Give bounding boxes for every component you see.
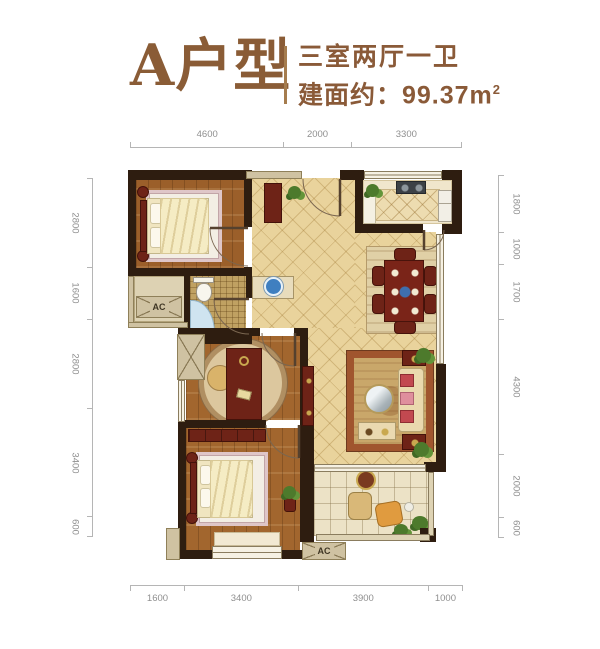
dimension-label: 1600 (147, 593, 168, 604)
sofa-cushion-icon (400, 392, 414, 405)
dimension-ruler-right: 18001000170043002000600 (498, 175, 504, 538)
dimension-segment: 2000 (283, 142, 350, 148)
ac-platform-left: AC (136, 296, 182, 318)
wall-bedroom2-north (178, 420, 266, 428)
wall-bath-east-upper (246, 276, 252, 298)
dimension-label: 600 (70, 519, 81, 535)
foyer-plant-icon (288, 186, 301, 199)
dimension-segment: 2800 (87, 178, 93, 267)
flue-shaft (177, 334, 205, 380)
dimension-segment: 1700 (498, 264, 504, 318)
bed-headboard-icon (140, 200, 147, 252)
dining-bay-window (436, 234, 444, 364)
dimension-label: 3300 (396, 129, 417, 140)
sofa-cushion-icon (400, 374, 414, 387)
dimension-label: 3400 (231, 593, 252, 604)
dimension-segment: 600 (498, 517, 504, 538)
wardrobe-icon (188, 429, 266, 442)
dimension-label: 3900 (353, 593, 374, 604)
dimension-segment: 3400 (184, 585, 298, 591)
dimension-label: 4600 (197, 129, 218, 140)
dimension-segment: 1000 (498, 232, 504, 264)
dimension-ruler-top: 460020003300 (130, 142, 462, 148)
dimension-segment: 3900 (298, 585, 428, 591)
dimension-segment: 1800 (498, 175, 504, 232)
ac-niche-west-wall (128, 276, 134, 328)
dimension-ruler-left: 2800160028003400600 (87, 178, 93, 537)
balcony-chair-icon (348, 492, 372, 520)
dining-chair-icon (394, 321, 416, 334)
floorplan-page: A户型 三室两厅一卫 建面约：99.37m2 460020003300 1600… (0, 0, 600, 649)
dimension-segment: 4600 (130, 142, 283, 148)
dimension-label: 2800 (70, 213, 81, 234)
dimension-label: 4300 (511, 376, 522, 397)
wall-bedroom2-south-a (178, 550, 216, 559)
balcony-table-icon (356, 470, 376, 490)
dimension-label: 2000 (511, 475, 522, 496)
tv-bench-icon (358, 422, 396, 440)
wall-kitchen-south-corner (442, 224, 462, 234)
wall-top-master (128, 170, 246, 180)
desk-plate-icon (239, 356, 249, 366)
dimension-label: 2800 (70, 353, 81, 374)
living-plant-icon (414, 442, 429, 457)
toilet-icon (196, 283, 212, 302)
rooms-text: 三室两厅一卫 (298, 42, 501, 73)
nightstand-icon (137, 186, 149, 198)
dimension-segment: 1600 (87, 267, 93, 318)
living-plant-icon (416, 348, 431, 363)
page-title: A户型 (130, 30, 291, 102)
blanket-icon (160, 198, 209, 254)
dimension-label: 1600 (70, 283, 81, 304)
shoe-cabinet-icon (264, 183, 282, 223)
dimension-label: 1000 (435, 593, 456, 604)
wall-bedroom2-east (300, 420, 314, 542)
fridge-icon (438, 190, 452, 222)
dimension-label: 3400 (70, 452, 81, 473)
dining-table-icon (384, 260, 424, 322)
coffee-table-icon (364, 384, 394, 414)
dimension-segment: 1000 (428, 585, 463, 591)
sofa-cushion-icon (400, 410, 414, 423)
dimension-label: 600 (511, 520, 522, 536)
dimension-segment: 2000 (498, 454, 504, 517)
dimension-segment: 4300 (498, 319, 504, 454)
wall-master-south (128, 268, 252, 276)
blanket-icon (210, 460, 253, 518)
study-window (178, 380, 185, 422)
ac-niche-south-wall (128, 322, 188, 328)
stove-icon (396, 181, 426, 194)
area-text: 建面约：99.37m2 (298, 73, 501, 112)
balcony-slider-window (314, 464, 426, 472)
unit-summary: 三室两厅一卫 建面约：99.37m2 (298, 42, 501, 112)
bedroom2-plant-icon (283, 486, 296, 499)
bay-window-seat (214, 532, 280, 546)
wall-living-east (436, 364, 446, 472)
dimension-segment: 600 (87, 516, 93, 537)
wall-balcony-north-jamb (424, 462, 438, 472)
balcony-rail-east (428, 472, 434, 536)
dimension-ruler-bottom: 1600340039001000 (130, 585, 463, 591)
ac-platform-bottom: AC (302, 542, 346, 560)
dimension-segment: 1600 (130, 585, 184, 591)
dimension-label: 1000 (511, 238, 522, 259)
header-divider (284, 46, 287, 104)
kitchen-counter-icon (363, 196, 376, 224)
washbasin-icon (264, 277, 283, 296)
wall-kitchen-south (355, 224, 423, 233)
wall-master-west (128, 170, 136, 276)
dimension-segment: 3300 (351, 142, 462, 148)
dimension-label: 2000 (307, 129, 328, 140)
dimension-label: 1700 (511, 281, 522, 302)
bed-headboard-icon (190, 462, 197, 514)
balcony-rail-south (316, 534, 430, 541)
dimension-label: 1800 (511, 194, 522, 215)
bay-window-step (166, 528, 180, 560)
wall-master-east-lower (244, 267, 252, 276)
dimension-segment: 2800 (87, 319, 93, 408)
dimension-segment: 3400 (87, 408, 93, 516)
kitchen-plant-icon (366, 184, 379, 197)
tv-cabinet-icon (302, 366, 314, 426)
bedroom2-bay-window (212, 546, 282, 559)
kitchen-window (364, 171, 442, 179)
wall-top-foyer (246, 171, 302, 179)
balcony-stone-icon (404, 502, 414, 512)
